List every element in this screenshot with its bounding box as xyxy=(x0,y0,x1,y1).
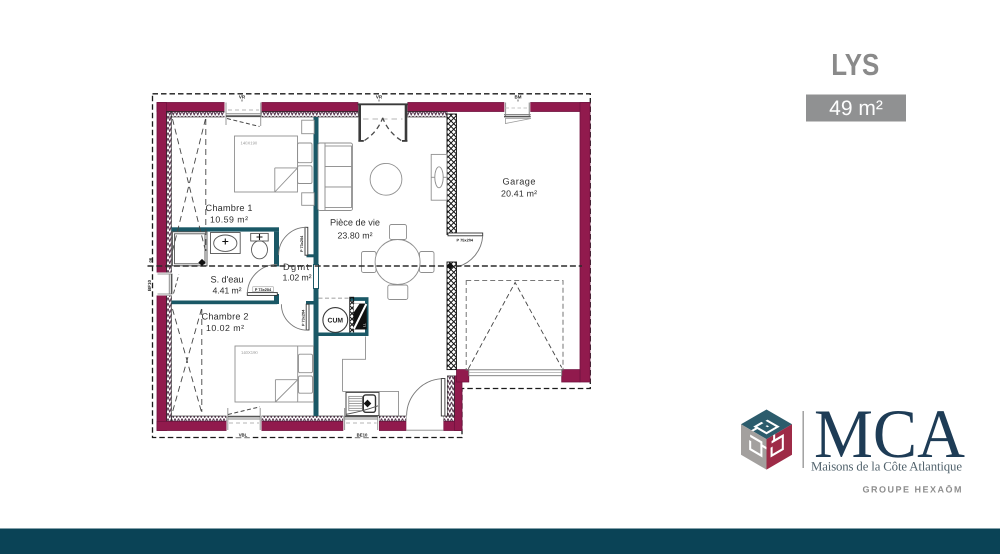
svg-text:140X190: 140X190 xyxy=(241,350,258,355)
svg-text:Garage: Garage xyxy=(503,177,536,187)
svg-text:BE10: BE10 xyxy=(357,433,368,438)
svg-text:20.41 m²: 20.41 m² xyxy=(501,189,537,199)
svg-text:LL: LL xyxy=(363,323,367,327)
svg-text:140X190: 140X190 xyxy=(241,141,258,146)
svg-text:10.02 m²: 10.02 m² xyxy=(206,323,244,333)
svg-text:VR: VR xyxy=(239,95,246,100)
svg-text:VR: VR xyxy=(376,95,383,100)
svg-text:06: 06 xyxy=(148,257,153,262)
svg-text:GROUPE HEXAŌM: GROUPE HEXAŌM xyxy=(862,484,963,494)
svg-text:4.41 m²: 4.41 m² xyxy=(213,286,242,296)
svg-text:P 75x204: P 75x204 xyxy=(457,238,474,243)
svg-text:BM: BM xyxy=(515,95,522,100)
svg-text:23.80 m²: 23.80 m² xyxy=(338,231,373,241)
svg-text:Chambre 1: Chambre 1 xyxy=(206,203,253,213)
svg-text:P 73x204: P 73x204 xyxy=(300,235,304,252)
svg-text:LYS: LYS xyxy=(831,48,879,82)
svg-text:P 73x204: P 73x204 xyxy=(302,309,306,326)
svg-text:1.02 m²: 1.02 m² xyxy=(283,273,312,283)
svg-text:10.59 m²: 10.59 m² xyxy=(210,215,248,225)
svg-text:Maisons de la Côte Atlantique: Maisons de la Côte Atlantique xyxy=(811,459,962,473)
svg-text:P 73x204: P 73x204 xyxy=(255,288,272,292)
svg-text:VBL: VBL xyxy=(239,433,248,438)
svg-text:49 m²: 49 m² xyxy=(829,97,883,120)
svg-text:BF10: BF10 xyxy=(147,279,152,291)
svg-text:Pièce de vie: Pièce de vie xyxy=(330,218,380,228)
svg-text:CUM: CUM xyxy=(328,318,344,325)
svg-text:S. d'eau: S. d'eau xyxy=(211,275,244,285)
svg-text:Chambre 2: Chambre 2 xyxy=(202,312,249,322)
